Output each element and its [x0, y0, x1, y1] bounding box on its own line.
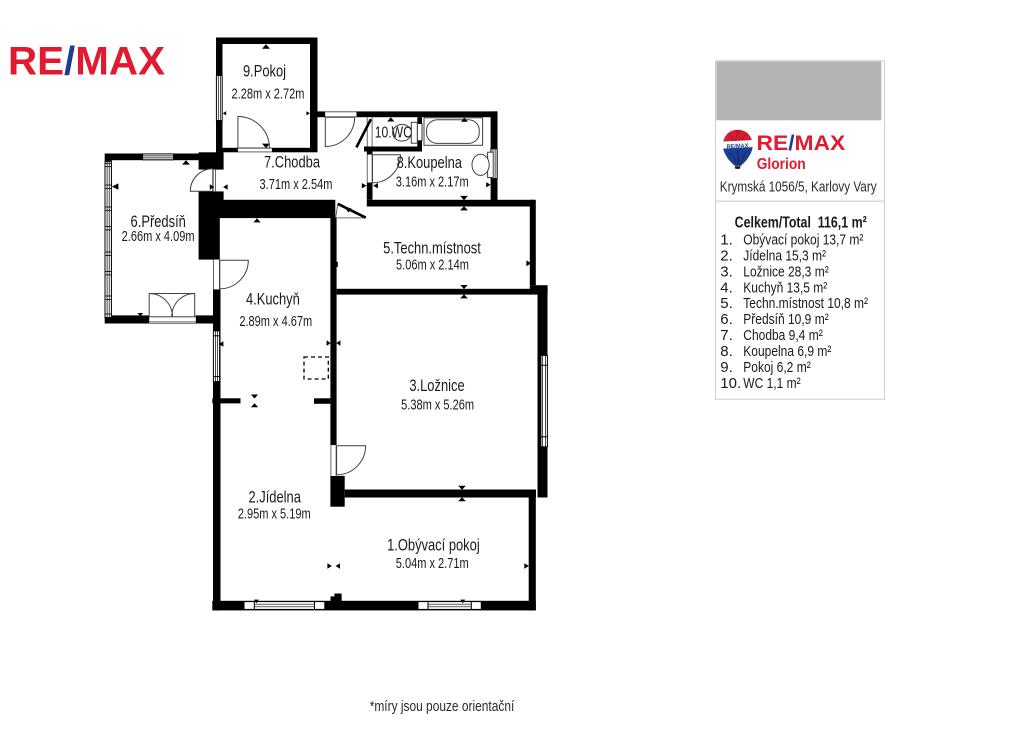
svg-text:10.: 10. [720, 375, 741, 392]
svg-text:2.95m x 5.19m: 2.95m x 5.19m [238, 507, 311, 523]
svg-text:Chodba 9,4 m²: Chodba 9,4 m² [743, 327, 822, 344]
svg-text:8.: 8. [720, 343, 733, 360]
svg-text:10.WC: 10.WC [375, 125, 412, 142]
svg-text:9.: 9. [720, 359, 733, 376]
svg-text:4.: 4. [720, 279, 733, 296]
svg-text:Ložnice 28,3 m²: Ložnice 28,3 m² [743, 263, 828, 280]
svg-text:5.38m x 5.26m: 5.38m x 5.26m [401, 398, 474, 414]
svg-text:*míry jsou pouze orientační: *míry jsou pouze orientační [370, 698, 515, 715]
svg-text:8.Koupelna: 8.Koupelna [397, 153, 463, 172]
svg-text:5.: 5. [720, 295, 733, 312]
svg-text:5.04m x 2.71m: 5.04m x 2.71m [396, 556, 469, 572]
svg-text:2.66m x 4.09m: 2.66m x 4.09m [122, 229, 195, 245]
svg-text:Jídelna 15,3 m²: Jídelna 15,3 m² [743, 247, 826, 264]
svg-text:Koupelna 6,9 m²: Koupelna 6,9 m² [743, 343, 831, 360]
svg-text:2.89m x 4.67m: 2.89m x 4.67m [239, 314, 312, 330]
svg-text:5.Techn.místnost: 5.Techn.místnost [383, 238, 481, 257]
svg-text:WC 1,1 m²: WC 1,1 m² [743, 375, 800, 392]
svg-text:Glorion: Glorion [757, 156, 806, 173]
svg-text:2.Jídelna: 2.Jídelna [249, 488, 302, 507]
svg-text:Obývací pokoj 13,7 m²: Obývací pokoj 13,7 m² [743, 231, 863, 248]
svg-text:1.Obývací pokoj: 1.Obývací pokoj [387, 536, 480, 555]
svg-text:Pokoj 6,2 m²: Pokoj 6,2 m² [743, 359, 810, 376]
svg-text:7.: 7. [720, 327, 733, 344]
svg-text:7.Chodba: 7.Chodba [264, 152, 320, 171]
svg-text:3.: 3. [720, 263, 733, 280]
svg-text:5.06m x 2.14m: 5.06m x 2.14m [396, 257, 469, 273]
svg-text:3.16m x 2.17m: 3.16m x 2.17m [396, 174, 469, 190]
svg-text:4.Kuchyň: 4.Kuchyň [246, 290, 300, 309]
svg-text:9.Pokoj: 9.Pokoj [243, 62, 286, 81]
svg-text:Kuchyň 13,5 m²: Kuchyň 13,5 m² [743, 279, 827, 296]
svg-text:RE/MAX: RE/MAX [8, 40, 165, 84]
svg-text:RE/MAX: RE/MAX [757, 130, 846, 155]
svg-text:RE/MAX: RE/MAX [726, 143, 748, 150]
svg-text:Techn.místnost 10,8 m²: Techn.místnost 10,8 m² [743, 295, 868, 312]
svg-text:2.28m x 2.72m: 2.28m x 2.72m [232, 87, 305, 103]
svg-text:1.: 1. [720, 231, 733, 248]
svg-text:3.71m x 2.54m: 3.71m x 2.54m [260, 177, 333, 193]
svg-text:2.: 2. [720, 247, 733, 264]
svg-text:Krymská 1056/5, Karlovy Vary: Krymská 1056/5, Karlovy Vary [720, 178, 877, 195]
svg-text:Předsíň 10,9 m²: Předsíň 10,9 m² [743, 311, 828, 328]
svg-text:Celkem/Total 116,1 m²: Celkem/Total 116,1 m² [735, 215, 867, 232]
svg-text:3.Ložnice: 3.Ložnice [409, 376, 464, 395]
svg-text:6.: 6. [720, 311, 733, 328]
